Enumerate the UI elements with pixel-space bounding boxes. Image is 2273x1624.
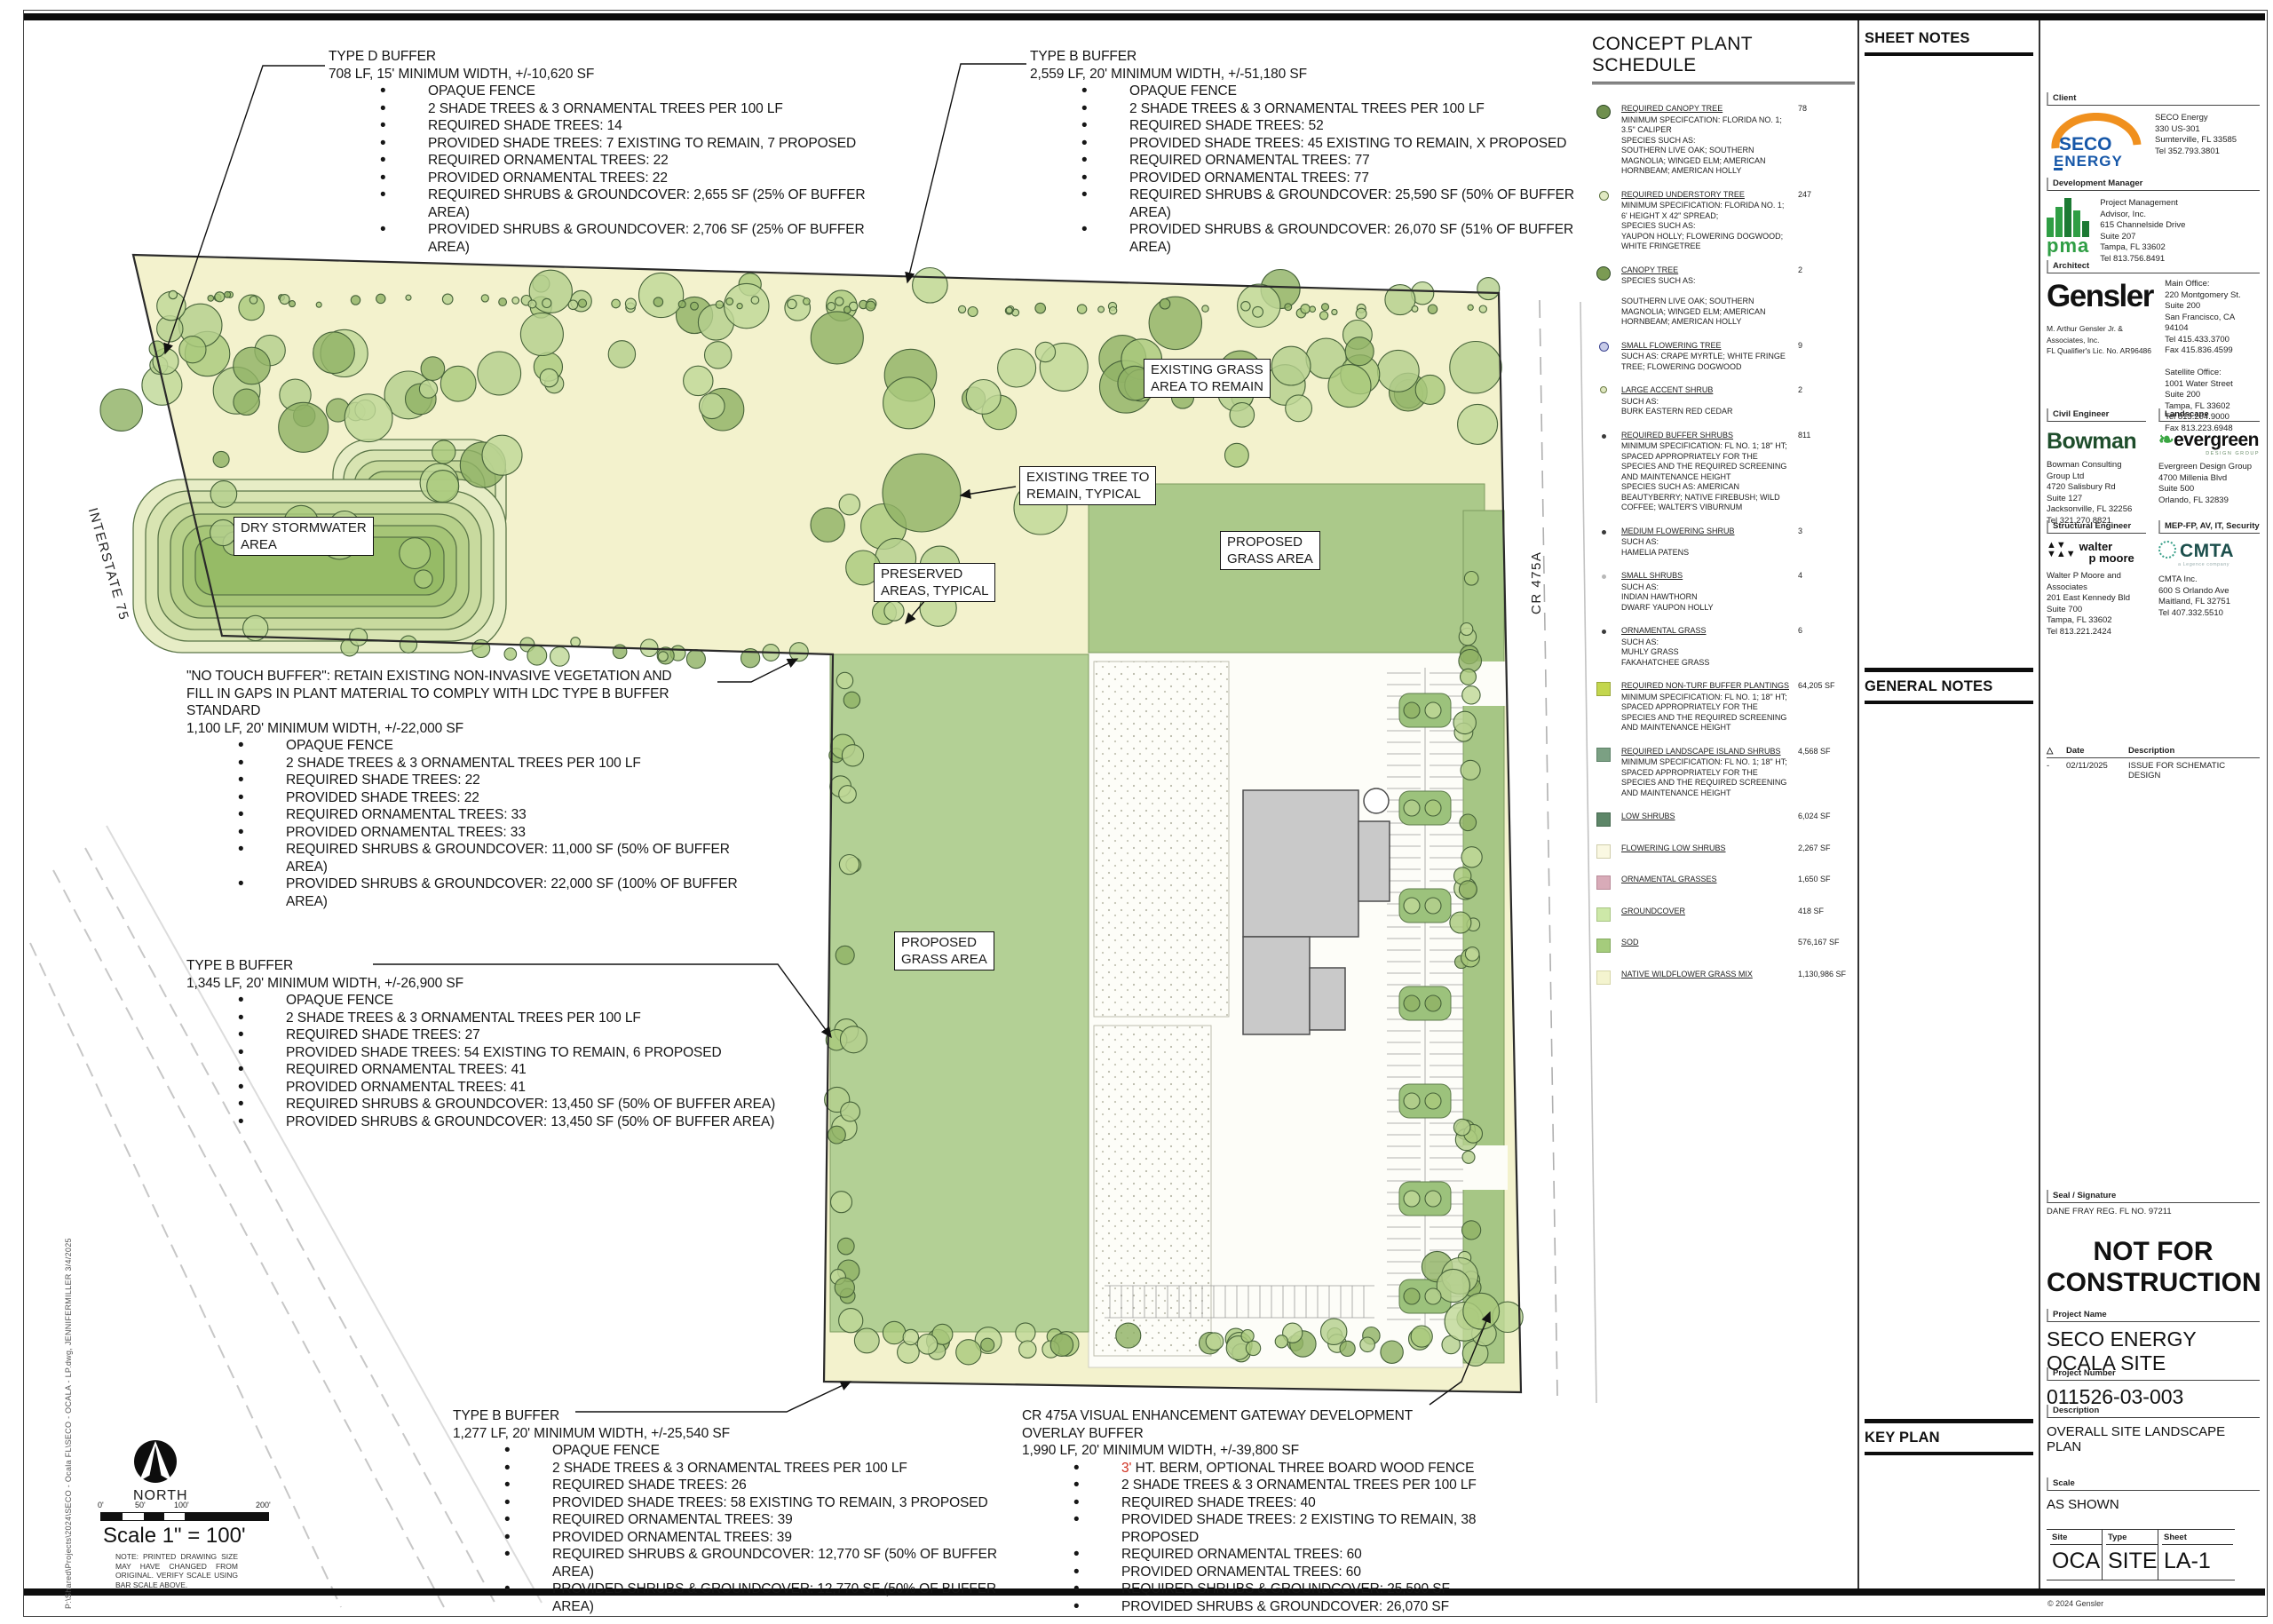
annotation-bullet: PROVIDED ORNAMENTAL TREES: 33 [186, 824, 764, 842]
not-for-construction-stamp: NOT FOR CONSTRUCTION [2047, 1236, 2260, 1298]
plant-description: MINIMUM SPECIFICATION: FL NO. 1; 18" HT;… [1621, 693, 1792, 733]
plant-symbol-icon [1596, 812, 1611, 827]
revision-desc-header: Description [2128, 746, 2260, 756]
landscape-address: Evergreen Design Group 4700 Millenia Blv… [2158, 462, 2260, 506]
plant-symbol-icon [1596, 939, 1611, 953]
annotation-bullet: PROVIDED ORNAMENTAL TREES: 41 [186, 1079, 790, 1097]
titleblock-description: Description OVERALL SITE LANDSCAPE PLAN [2047, 1405, 2260, 1454]
annotation-subtitle: 708 LF, 15' MINIMUM WIDTH, +/-10,620 SF [329, 66, 897, 83]
annotation-bullet: PROVIDED ORNAMENTAL TREES: 39 [453, 1529, 1021, 1547]
label-proposed-grass-left: PROPOSED GRASS AREA [894, 931, 994, 970]
plant-schedule-item: SOD 576,167 SF [1592, 938, 1855, 956]
sheet-top-bar [24, 13, 2265, 20]
annotation-bullet: REQUIRED ORNAMENTAL TREES: 33 [186, 806, 764, 824]
label-preserved-areas: PRESERVED AREAS, TYPICAL [874, 563, 995, 602]
plant-name: CANOPY TREE [1621, 265, 1792, 276]
plant-description: MINIMUM SPECIFCATION: FLORIDA NO. 1; 3.5… [1621, 115, 1792, 177]
plant-symbol-icon [1596, 875, 1611, 890]
label-cr-475a: CR 475A [1529, 551, 1544, 614]
general-notes-panel: GENERAL NOTES [1865, 668, 2033, 704]
annotation-subtitle: 2,559 LF, 20' MINIMUM WIDTH, +/-51,180 S… [1030, 66, 1598, 83]
annotation-type-d-buffer: TYPE D BUFFER 708 LF, 15' MINIMUM WIDTH,… [329, 48, 897, 256]
annotation-title: TYPE B BUFFER [453, 1407, 1021, 1425]
plant-symbol-icon [1599, 191, 1609, 201]
description-value: OVERALL SITE LANDSCAPE PLAN [2047, 1424, 2260, 1454]
plant-description: SUCH AS: HAMELIA PATENS [1621, 537, 1792, 558]
plant-name: FLOWERING LOW SHRUBS [1621, 844, 1792, 854]
scale-note: NOTE: PRINTED DRAWING SIZE MAY HAVE CHAN… [115, 1552, 238, 1589]
plant-name: SMALL FLOWERING TREE [1621, 341, 1792, 352]
dev-manager-label: Development Manager [2047, 178, 2260, 191]
titleblock-project-number: Project Number 011526-03-003 [2047, 1367, 2260, 1409]
annotation-type-b-buffer-mid: TYPE B BUFFER 1,345 LF, 20' MINIMUM WIDT… [186, 957, 790, 1130]
plant-description: MINIMUM SPECIFICATION: FL NO. 1; 18" HT;… [1621, 757, 1792, 798]
annotation-bullet: REQUIRED ORNAMENTAL TREES: 39 [453, 1511, 1021, 1529]
plant-description: MINIMUM SPECIFICATION: FLORIDA NO. 1; 6'… [1621, 201, 1792, 252]
plant-description: SUCH AS: CRAPE MYRTLE; WHITE FRINGE TREE… [1621, 352, 1792, 372]
plant-schedule-item: REQUIRED NON-TURF BUFFER PLANTINGS MINIM… [1592, 681, 1855, 733]
plant-schedule-item: ORNAMENTAL GRASSES 1,650 SF [1592, 875, 1855, 893]
site-value: OCA [2050, 1545, 2102, 1574]
mep-label: MEP-FP, AV, IT, Security [2158, 520, 2260, 534]
svg-text:SECO: SECO [2059, 134, 2112, 154]
revision-date-header: Date [2066, 746, 2128, 756]
annotation-title: TYPE B BUFFER [1030, 48, 1598, 66]
plant-symbol-icon [1596, 105, 1611, 119]
evergreen-logo: ❧evergreen DESIGN GROUP [2158, 429, 2260, 456]
annotation-subtitle: 1,345 LF, 20' MINIMUM WIDTH, +/-26,900 S… [186, 975, 790, 993]
plant-schedule-item: REQUIRED UNDERSTORY TREE MINIMUM SPECIFI… [1592, 190, 1855, 252]
annotation-no-touch-buffer: "NO TOUCH BUFFER": RETAIN EXISTING NON-I… [186, 668, 764, 910]
annotation-bullet: 2 SHADE TREES & 3 ORNAMENTAL TREES PER 1… [186, 755, 764, 772]
sheet-notes-panel: SHEET NOTES [1865, 30, 2033, 56]
plant-quantity: 1,130,986 SF [1798, 970, 1855, 988]
plant-schedule-item: SMALL SHRUBS SUCH AS: INDIAN HAWTHORN DW… [1592, 571, 1855, 613]
annotation-title: CR 475A VISUAL ENHANCEMENT GATEWAY DEVEL… [1022, 1407, 1555, 1442]
plant-quantity: 4 [1798, 571, 1855, 613]
plant-quantity: 78 [1798, 104, 1855, 177]
plant-schedule-item: LOW SHRUBS 6,024 SF [1592, 812, 1855, 830]
annotation-bullet: PROVIDED SHRUBS & GROUNDCOVER: 26,070 SF… [1030, 221, 1598, 256]
plant-schedule-item: LARGE ACCENT SHRUB SUCH AS: BURK EASTERN… [1592, 385, 1855, 417]
pma-logo: pma [2047, 198, 2089, 265]
titleblock-revisions: △ Date Description -02/11/2025ISSUE FOR … [2047, 746, 2260, 780]
plant-symbol-icon [1600, 386, 1607, 393]
laydown-area-upper [1094, 661, 1229, 1017]
annotation-title: TYPE B BUFFER [186, 957, 790, 975]
annotation-bullet: REQUIRED SHRUBS & GROUNDCOVER: 12,770 SF… [453, 1546, 1021, 1580]
plant-quantity: 576,167 SF [1798, 938, 1855, 956]
scale-text: Scale 1" = 100' [103, 1524, 246, 1549]
seal-label: Seal / Signature [2047, 1190, 2260, 1203]
plant-quantity: 2 [1798, 385, 1855, 417]
annotation-bullet: 2 SHADE TREES & 3 ORNAMENTAL TREES PER 1… [453, 1460, 1021, 1477]
plant-description: SUCH AS: INDIAN HAWTHORN DWARF YAUPON HO… [1621, 582, 1792, 614]
proposed-grass-area-left [830, 654, 1089, 1332]
annotation-bullet: REQUIRED SHADE TREES: 14 [329, 117, 897, 135]
seco-energy-logo: SECO ENERGY [2047, 113, 2146, 171]
plant-quantity: 418 SF [1798, 907, 1855, 925]
plant-schedule-item: REQUIRED CANOPY TREE MINIMUM SPECIFCATIO… [1592, 104, 1855, 177]
type-value: SITE [2106, 1545, 2158, 1574]
plant-name: REQUIRED BUFFER SHRUBS [1621, 431, 1792, 441]
seal-signature-line: DANE FRAY REG. FL NO. 97211 [2047, 1207, 2260, 1218]
plant-name: GROUNDCOVER [1621, 907, 1792, 917]
titleblock-structural-mep: Structural Engineer ▲▼▼▲▼ walter p moore… [2047, 520, 2260, 638]
annotation-title: "NO TOUCH BUFFER": RETAIN EXISTING NON-I… [186, 668, 764, 720]
general-notes-title: GENERAL NOTES [1865, 678, 2033, 695]
annotation-bullet: PROVIDED ORNAMENTAL TREES: 77 [1030, 170, 1598, 187]
concept-plant-schedule: CONCEPT PLANT SCHEDULE REQUIRED CANOPY T… [1592, 34, 1855, 1001]
plant-name: REQUIRED UNDERSTORY TREE [1621, 190, 1792, 201]
scale-label: Scale [2047, 1477, 2260, 1491]
annotation-bullet: REQUIRED SHADE TREES: 26 [453, 1477, 1021, 1494]
annotation-bullet: REQUIRED ORNAMENTAL TREES: 77 [1030, 152, 1598, 170]
annotation-bullet: PROVIDED SHRUBS & GROUNDCOVER: 26,070 SF [1022, 1598, 1555, 1616]
type-header: Type [2106, 1532, 2158, 1545]
plant-symbol-icon [1596, 682, 1611, 696]
annotation-bullet: PROVIDED ORNAMENTAL TREES: 60 [1022, 1564, 1555, 1581]
annotation-bullet: OPAQUE FENCE [186, 992, 790, 1010]
annotation-bullet: REQUIRED SHRUBS & GROUNDCOVER: 11,000 SF… [186, 841, 764, 875]
label-proposed-grass-right: PROPOSED GRASS AREA [1220, 531, 1320, 570]
civil-label: Civil Engineer [2047, 408, 2146, 422]
annotation-bullet: OPAQUE FENCE [453, 1442, 1021, 1460]
sheet-number-value: LA-1 [2162, 1545, 2233, 1574]
annotation-bullet: REQUIRED ORNAMENTAL TREES: 41 [186, 1061, 790, 1079]
scale-value: AS SHOWN [2047, 1497, 2260, 1512]
annotation-type-b-buffer-top: TYPE B BUFFER 2,559 LF, 20' MINIMUM WIDT… [1030, 48, 1598, 256]
project-name-label: Project Name [2047, 1309, 2260, 1322]
titleblock-scale: Scale AS SHOWN [2047, 1477, 2260, 1512]
annotation-bullet: PROVIDED ORNAMENTAL TREES: 22 [329, 170, 897, 187]
plant-name: SOD [1621, 938, 1792, 948]
plant-schedule-item: REQUIRED LANDSCAPE ISLAND SHRUBS MINIMUM… [1592, 747, 1855, 799]
client-label: Client [2047, 92, 2260, 106]
architect-label: Architect [2047, 260, 2260, 273]
plant-schedule-item: MEDIUM FLOWERING SHRUB SUCH AS: HAMELIA … [1592, 527, 1855, 558]
plant-name: REQUIRED LANDSCAPE ISLAND SHRUBS [1621, 747, 1792, 757]
north-arrow-icon [131, 1438, 181, 1488]
plant-description: SUCH AS: BURK EASTERN RED CEDAR [1621, 397, 1792, 417]
description-label: Description [2047, 1405, 2260, 1418]
annotation-bullet: 2 SHADE TREES & 3 ORNAMENTAL TREES PER 1… [329, 100, 897, 118]
revision-triangle-icon: △ [2047, 746, 2066, 756]
plant-quantity: 9 [1798, 341, 1855, 373]
titleblock-seal: Seal / Signature DANE FRAY REG. FL NO. 9… [2047, 1190, 2260, 1218]
annotation-bullet: REQUIRED SHRUBS & GROUNDCOVER: 25,590 SF [1022, 1580, 1555, 1598]
annotation-bullet: REQUIRED ORNAMENTAL TREES: 60 [1022, 1546, 1555, 1564]
annotation-bullet: PROVIDED SHRUBS & GROUNDCOVER: 22,000 SF… [186, 875, 764, 910]
plant-symbol-icon [1602, 434, 1606, 439]
file-path-note: P:\Shared\Projects\2024\SECO - Ocala FL\… [64, 1238, 73, 1609]
civil-address: Bowman Consulting Group Ltd 4720 Salisbu… [2047, 460, 2146, 527]
dev-manager-address: Project Management Advisor, Inc. 615 Cha… [2100, 198, 2185, 265]
plant-symbol-icon [1596, 970, 1611, 985]
plant-quantity: 811 [1798, 431, 1855, 513]
plant-name: MEDIUM FLOWERING SHRUB [1621, 527, 1792, 537]
site-header: Site [2050, 1532, 2102, 1545]
plant-symbol-icon [1596, 844, 1611, 859]
plant-symbol-icon [1596, 266, 1611, 281]
annotation-subtitle: 1,100 LF, 20' MINIMUM WIDTH, +/-22,000 S… [186, 720, 764, 738]
titleblock-development-manager: Development Manager pma Project Manageme… [2047, 178, 2260, 265]
annotation-bullet: 3' HT. BERM, OPTIONAL THREE BOARD WOOD F… [1022, 1460, 1555, 1477]
plant-quantity: 2,267 SF [1798, 844, 1855, 862]
scale-bar [100, 1512, 269, 1521]
sheet-header: Sheet [2162, 1532, 2233, 1545]
label-dry-stormwater-area: DRY STORMWATER AREA [234, 517, 374, 556]
annotation-bullet: OPAQUE FENCE [1030, 83, 1598, 100]
annotation-bullet: PROVIDED SHADE TREES: 58 EXISTING TO REM… [453, 1494, 1021, 1512]
structural-label: Structural Engineer [2047, 520, 2146, 534]
svg-text:ENERGY: ENERGY [2054, 153, 2123, 170]
plant-name: REQUIRED CANOPY TREE [1621, 104, 1792, 115]
plant-quantity: 6,024 SF [1798, 812, 1855, 830]
plant-name: LARGE ACCENT SHRUB [1621, 385, 1792, 396]
gensler-logo: Gensler [2047, 279, 2159, 314]
annotation-bullet: REQUIRED ORNAMENTAL TREES: 22 [329, 152, 897, 170]
annotation-bullet: OPAQUE FENCE [186, 737, 764, 755]
titleblock-sheet-table: Site OCA Type SITE Sheet LA-1 [2047, 1529, 2235, 1580]
titleblock-project-name: Project Name SECO ENERGY OCALA SITE [2047, 1309, 2260, 1375]
plant-symbol-icon [1602, 574, 1606, 579]
annotation-bullet: 2 SHADE TREES & 3 ORNAMENTAL TREES PER 1… [1030, 100, 1598, 118]
divider-schedule [1857, 20, 1859, 1588]
architect-license: M. Arthur Gensler Jr. & Associates, Inc.… [2047, 323, 2159, 357]
plant-schedule-item: REQUIRED BUFFER SHRUBS MINIMUM SPECIFICA… [1592, 431, 1855, 513]
laydown-area-lower [1094, 1026, 1211, 1356]
plant-symbol-icon [1599, 342, 1609, 352]
key-plan-title: KEY PLAN [1865, 1430, 2033, 1446]
annotation-bullet: PROVIDED SHADE TREES: 54 EXISTING TO REM… [186, 1044, 790, 1062]
plant-quantity: 2 [1798, 265, 1855, 328]
plant-description: SPECIES SUCH AS: SOUTHERN LIVE OAK; SOUT… [1621, 276, 1792, 328]
plant-name: ORNAMENTAL GRASSES [1621, 875, 1792, 885]
plant-symbol-icon [1596, 748, 1611, 762]
plant-symbol-icon [1602, 530, 1606, 535]
plant-symbol-icon [1596, 907, 1611, 922]
label-existing-grass-area: EXISTING GRASS AREA TO REMAIN [1144, 359, 1271, 398]
annotation-bullet: OPAQUE FENCE [329, 83, 897, 100]
cmta-logo: CMTA a Legence company [2158, 541, 2260, 567]
walter-p-moore-logo: ▲▼▼▲▼ walter p moore [2047, 541, 2146, 564]
plant-name: SMALL SHRUBS [1621, 571, 1792, 582]
annotation-bullet: PROVIDED SHADE TREES: 7 EXISTING TO REMA… [329, 135, 897, 153]
structural-address: Walter P Moore and Associates 201 East K… [2047, 571, 2146, 638]
plant-schedule-item: ORNAMENTAL GRASS SUCH AS: MUHLY GRASS FA… [1592, 626, 1855, 668]
annotation-bullet: 2 SHADE TREES & 3 ORNAMENTAL TREES PER 1… [1022, 1477, 1555, 1494]
titleblock-civil-landscape: Civil Engineer Bowman Bowman Consulting … [2047, 408, 2260, 527]
annotation-bullet: PROVIDED SHADE TREES: 45 EXISTING TO REM… [1030, 135, 1598, 153]
annotation-bullet: PROVIDED SHRUBS & GROUNDCOVER: 2,706 SF … [329, 221, 897, 256]
annotation-bullet: PROVIDED SHADE TREES: 22 [186, 789, 764, 807]
plant-quantity: 247 [1798, 190, 1855, 252]
annotation-type-b-buffer-bottom: TYPE B BUFFER 1,277 LF, 20' MINIMUM WIDT… [453, 1407, 1021, 1615]
annotation-subtitle: 1,990 LF, 20' MINIMUM WIDTH, +/-39,800 S… [1022, 1442, 1555, 1460]
landscape-label: Landscape [2158, 408, 2260, 422]
plant-name: ORNAMENTAL GRASS [1621, 626, 1792, 637]
annotation-title: TYPE D BUFFER [329, 48, 897, 66]
annotation-bullet: PROVIDED SHADE TREES: 2 EXISTING TO REMA… [1022, 1511, 1555, 1546]
client-address: SECO Energy 330 US-301 Sumterville, FL 3… [2155, 113, 2237, 171]
project-number-label: Project Number [2047, 1367, 2260, 1381]
cr475a-road-lines [1540, 300, 1596, 1403]
sheet-notes-title: SHEET NOTES [1865, 30, 2033, 47]
annotation-bullet: REQUIRED SHRUBS & GROUNDCOVER: 13,450 SF… [186, 1096, 790, 1113]
mep-address: CMTA Inc. 600 S Orlando Ave Maitland, FL… [2158, 574, 2260, 619]
annotation-bullet: PROVIDED SHRUBS & GROUNDCOVER: 12,770 SF… [453, 1580, 1021, 1615]
plant-schedule-item: GROUNDCOVER 418 SF [1592, 907, 1855, 925]
plant-quantity: 64,205 SF [1798, 681, 1855, 733]
annotation-bullet: PROVIDED SHRUBS & GROUNDCOVER: 13,450 SF… [186, 1113, 790, 1131]
annotation-bullet: REQUIRED SHADE TREES: 40 [1022, 1494, 1555, 1512]
annotation-bullet: REQUIRED SHADE TREES: 27 [186, 1026, 790, 1044]
titleblock-client: Client SECO ENERGY SECO Energy 330 US-30… [2047, 92, 2260, 171]
annotation-bullet: REQUIRED SHRUBS & GROUNDCOVER: 2,655 SF … [329, 186, 897, 221]
annotation-bullet: REQUIRED SHADE TREES: 22 [186, 772, 764, 789]
plant-name: NATIVE WILDFLOWER GRASS MIX [1621, 970, 1792, 980]
plant-symbol-icon [1602, 630, 1606, 634]
plant-name: LOW SHRUBS [1621, 812, 1792, 822]
schedule-title: CONCEPT PLANT SCHEDULE [1592, 34, 1855, 84]
landscape-plan-sheet: TYPE D BUFFER 708 LF, 15' MINIMUM WIDTH,… [0, 0, 2273, 1624]
annotation-bullet: 2 SHADE TREES & 3 ORNAMENTAL TREES PER 1… [186, 1010, 790, 1027]
plant-quantity: 4,568 SF [1798, 747, 1855, 799]
annotation-bullet: REQUIRED SHADE TREES: 52 [1030, 117, 1598, 135]
revision-row: -02/11/2025ISSUE FOR SCHEMATIC DESIGN [2047, 758, 2260, 780]
plant-name: REQUIRED NON-TURF BUFFER PLANTINGS [1621, 681, 1792, 692]
bowman-logo: Bowman [2047, 429, 2146, 455]
annotation-subtitle: 1,277 LF, 20' MINIMUM WIDTH, +/-25,540 S… [453, 1425, 1021, 1443]
label-existing-tree: EXISTING TREE TO REMAIN, TYPICAL [1019, 466, 1156, 505]
plant-quantity: 1,650 SF [1798, 875, 1855, 893]
divider-titleblock [2039, 20, 2040, 1588]
plant-quantity: 3 [1798, 527, 1855, 558]
annotation-bullet: REQUIRED SHRUBS & GROUNDCOVER: 25,590 SF… [1030, 186, 1598, 221]
key-plan-panel: KEY PLAN [1865, 1419, 2033, 1455]
plant-schedule-item: SMALL FLOWERING TREE SUCH AS: CRAPE MYRT… [1592, 341, 1855, 373]
plant-description: SUCH AS: MUHLY GRASS FAKAHATCHEE GRASS [1621, 638, 1792, 669]
annotation-cr475a-overlay-buffer: CR 475A VISUAL ENHANCEMENT GATEWAY DEVEL… [1022, 1407, 1555, 1615]
plant-schedule-item: FLOWERING LOW SHRUBS 2,267 SF [1592, 844, 1855, 862]
plant-description: MINIMUM SPECIFICATION: FL NO. 1; 18" HT;… [1621, 441, 1792, 513]
plant-schedule-item: NATIVE WILDFLOWER GRASS MIX 1,130,986 SF [1592, 970, 1855, 988]
plant-schedule-item: CANOPY TREE SPECIES SUCH AS: SOUTHERN LI… [1592, 265, 1855, 328]
plant-quantity: 6 [1798, 626, 1855, 668]
